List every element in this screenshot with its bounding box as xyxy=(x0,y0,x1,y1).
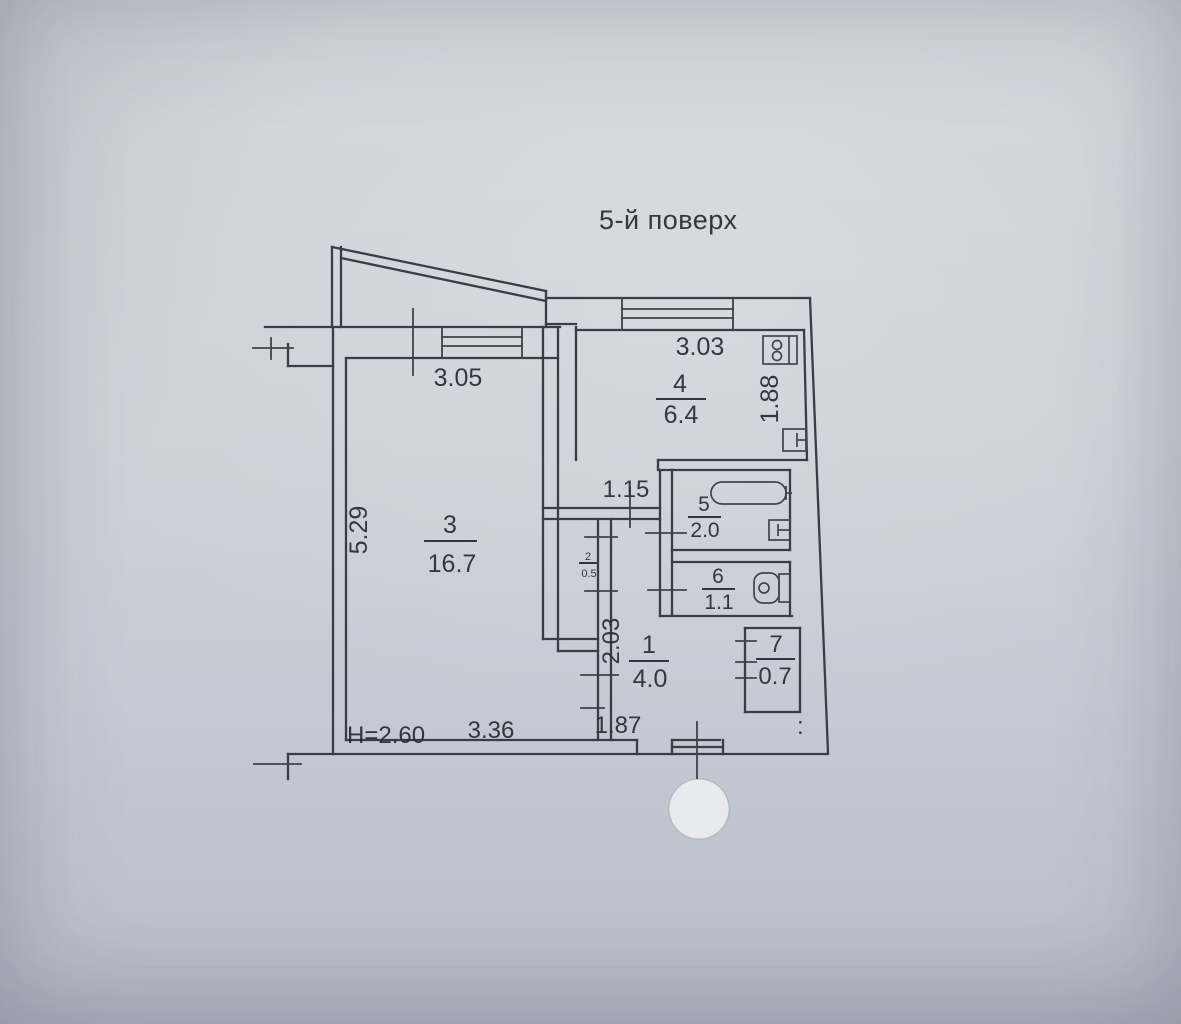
room7-area: 0.7 xyxy=(758,663,791,690)
dim-kitchen-depth: 1.88 xyxy=(756,375,784,424)
floor-plan-photo: 5-й поверх xyxy=(0,0,1181,1024)
colon-mark: : xyxy=(797,713,804,740)
bath-sink-icon xyxy=(769,520,790,540)
room5-number: 5 xyxy=(698,493,710,516)
room6-number: 6 xyxy=(712,565,724,588)
dim-kitchen-width: 3.03 xyxy=(676,333,725,361)
room3-area: 16.7 xyxy=(428,550,477,578)
dim-passage: 1.15 xyxy=(603,476,650,503)
room4-number: 4 xyxy=(673,370,687,398)
balcony-outline xyxy=(332,247,576,327)
room4-area: 6.4 xyxy=(664,401,699,429)
room3-number: 3 xyxy=(443,511,457,539)
stamp-circle xyxy=(669,779,729,839)
room7-number: 7 xyxy=(769,631,782,658)
room6-area: 1.1 xyxy=(704,591,733,614)
floor-plan-drawing: 5-й поверх xyxy=(0,0,1181,1024)
room1-area: 4.0 xyxy=(633,665,668,693)
window-kitchen xyxy=(622,298,733,330)
room3-label: 3 16.7 xyxy=(424,511,477,578)
room4-label: 4 6.4 xyxy=(656,370,706,429)
room1-label: 1 4.0 xyxy=(629,631,669,693)
dim-entry: 1.87 xyxy=(595,712,642,739)
bathtub-icon xyxy=(711,482,792,504)
room2-number: 2 xyxy=(585,551,591,563)
room5-area: 2.0 xyxy=(690,519,719,542)
page-title: 5-й поверх xyxy=(599,205,738,235)
room2-label: 2 0.5 xyxy=(579,551,597,580)
room7-label: 7 0.7 xyxy=(756,631,795,690)
room6-label: 6 1.1 xyxy=(702,565,735,614)
dim-room3-width: 3.05 xyxy=(434,364,483,392)
dim-room3-bottom: 3.36 xyxy=(468,717,515,744)
dim-hall-depth: 2.03 xyxy=(598,618,625,665)
toilet-icon xyxy=(754,573,790,603)
room1-number: 1 xyxy=(642,631,656,659)
dim-room3-depth: 5.29 xyxy=(345,506,373,555)
kitchen-sink-icon xyxy=(783,429,806,451)
dim-ceiling-height: H=2.60 xyxy=(347,722,425,749)
room2-area: 0.5 xyxy=(581,568,596,580)
window-room3 xyxy=(442,327,522,358)
room5-label: 5 2.0 xyxy=(688,493,721,542)
stove-icon xyxy=(763,336,797,364)
